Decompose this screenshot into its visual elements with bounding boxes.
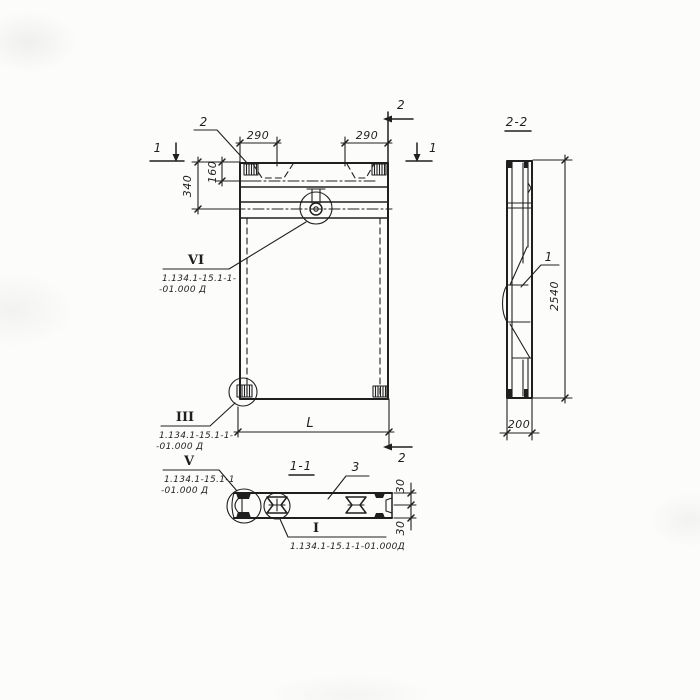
dim-30-bottom-text: 30 <box>394 521 407 536</box>
dim-30s: 30 30 <box>394 479 416 536</box>
dim-2540: 2540 <box>533 155 572 403</box>
cut-mark-2-top: 2 <box>383 98 413 163</box>
part-label-1-text: 1 <box>545 250 554 264</box>
dim-30-top-text: 30 <box>394 479 407 494</box>
detail-annotation-iii: III 1.134.1-15.1-1- -01.000 Д <box>156 403 235 452</box>
section-2-2-view: 2-2 1 <box>500 115 572 440</box>
dim-length-text: L <box>306 416 313 431</box>
corner-leader-label: 2 <box>200 115 209 129</box>
detail-annotation-i: I 1.134.1-15.1-1-01.000Д <box>280 519 405 552</box>
cut-label-2-bottom: 2 <box>398 451 407 465</box>
dim-290-right-text: 290 <box>356 129 379 142</box>
hatch-top-left <box>244 164 258 175</box>
cut-mark-1-right: 1 <box>406 141 438 162</box>
cut-label-2-top: 2 <box>397 98 406 112</box>
dim-200: 200 <box>500 399 539 440</box>
keyway-left <box>267 497 287 513</box>
detail-vi-numeral: VI <box>187 253 204 268</box>
scanned-drawing-sheet: 290 290 340 160 L 2 <box>0 0 700 700</box>
detail-circle-vi <box>300 192 332 224</box>
bar-left-end <box>232 493 251 518</box>
front-view: 290 290 340 160 L 2 <box>150 98 438 465</box>
detail-annotation-vi: VI 1.134.1-15.1-1- -01.000 Д <box>159 222 306 295</box>
detail-annotation-v: V 1.134.1-15.1-1 -01.000 Д <box>161 454 237 496</box>
dim-340-text: 340 <box>181 175 194 198</box>
dim-290-left: 290 <box>236 129 281 166</box>
dim-290-right: 290 <box>341 129 392 166</box>
detail-iii-numeral: III <box>176 410 194 425</box>
hatch-bottom-left <box>237 385 252 397</box>
detail-vi-ref1: 1.134.1-15.1-1- <box>162 274 236 284</box>
cut-mark-1-left: 1 <box>150 141 184 162</box>
detail-v-ref1: 1.134.1-15.1-1 <box>164 475 235 485</box>
dim-160-text: 160 <box>206 161 219 184</box>
cut-label-1-left: 1 <box>154 141 163 155</box>
part-label-3-text: 3 <box>352 460 361 474</box>
detail-i-numeral: I <box>313 521 319 536</box>
bar-right-end <box>374 493 392 518</box>
dim-200-text: 200 <box>508 418 531 431</box>
dim-2540-text: 2540 <box>548 281 561 311</box>
section-1-1-title: 1-1 <box>290 459 313 473</box>
cut-mark-2-bottom: 2 <box>383 444 412 466</box>
detail-iii-ref1: 1.134.1-15.1-1- <box>159 431 233 441</box>
cut-label-1-right: 1 <box>429 141 438 155</box>
hatch-top-right <box>372 164 386 175</box>
dim-length: L <box>234 399 394 448</box>
top-notch-left <box>253 164 293 178</box>
detail-v-numeral: V <box>183 454 195 469</box>
detail-vi-ref2: -01.000 Д <box>159 285 206 295</box>
detail-v-ref2: -01.000 Д <box>161 486 208 496</box>
technical-drawing: 290 290 340 160 L 2 <box>0 0 700 700</box>
section-2-2-title: 2-2 <box>506 115 529 129</box>
section-1-1-view: 1-1 3 <box>161 454 416 552</box>
detail-circle-iii <box>229 378 257 406</box>
dim-290-left-text: 290 <box>247 129 270 142</box>
panel-outline <box>240 163 388 399</box>
detail-iii-ref2: -01.000 Д <box>156 442 203 452</box>
keyway-middle <box>346 497 366 513</box>
detail-i-ref: 1.134.1-15.1-1-01.000Д <box>290 542 405 552</box>
top-notch-right <box>347 164 374 178</box>
